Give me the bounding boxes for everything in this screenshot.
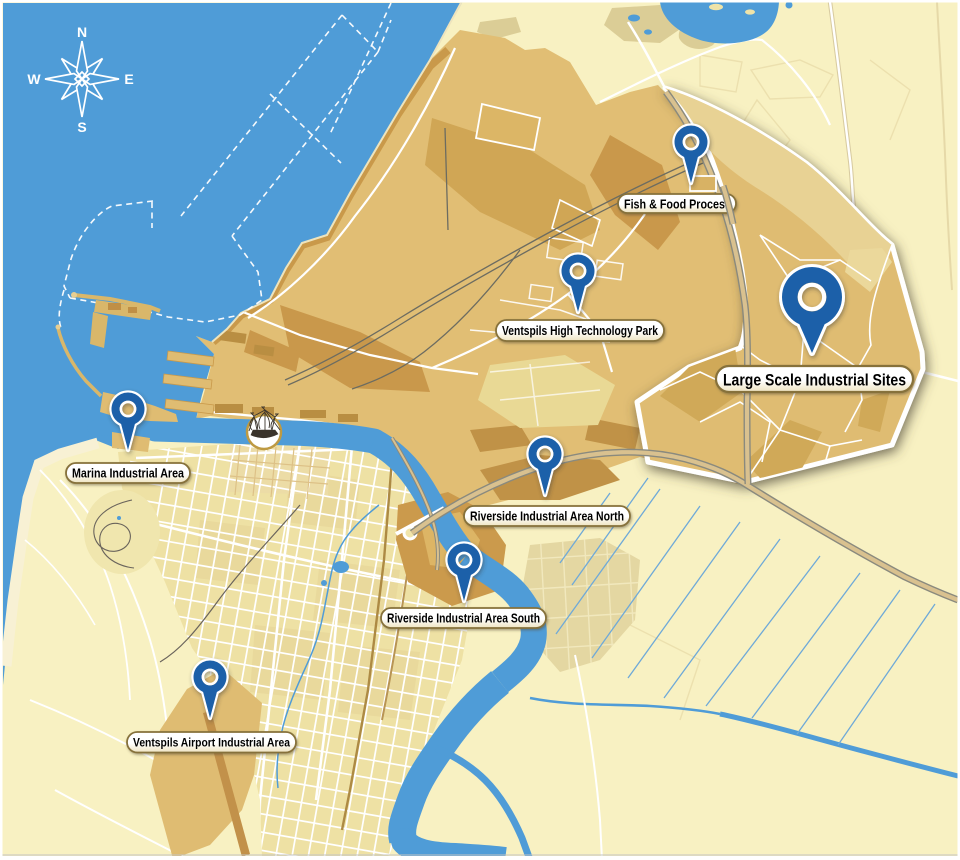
svg-text:E: E [124, 71, 133, 87]
svg-text:N: N [77, 24, 87, 40]
svg-text:W: W [27, 71, 41, 87]
svg-text:Riverside Industrial Area Sout: Riverside Industrial Area South [387, 611, 540, 626]
svg-text:Ventspils High Technology Park: Ventspils High Technology Park [502, 324, 659, 338]
svg-text:Fish & Food Proces.: Fish & Food Proces. [624, 197, 728, 212]
svg-text:S: S [77, 119, 86, 135]
svg-text:Large Scale Industrial Sites: Large Scale Industrial Sites [723, 371, 906, 390]
svg-text:Marina Industrial Area: Marina Industrial Area [72, 467, 185, 481]
svg-text:Ventspils Airport Industrial A: Ventspils Airport Industrial Area [133, 736, 290, 750]
svg-text:Riverside Industrial Area Nort: Riverside Industrial Area North [470, 509, 624, 524]
